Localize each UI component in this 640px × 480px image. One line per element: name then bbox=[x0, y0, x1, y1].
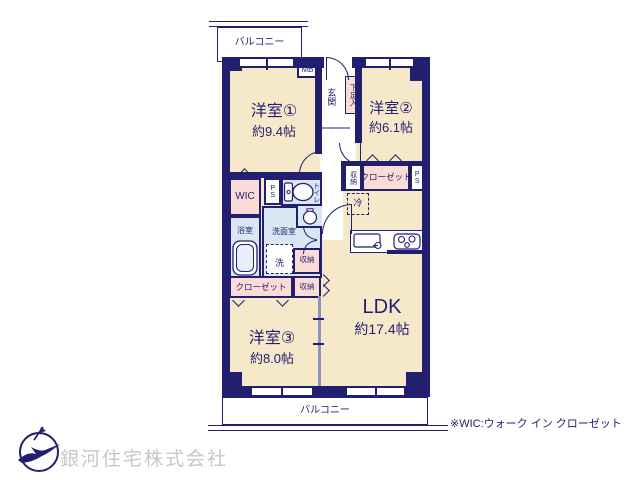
bathtub-icon bbox=[232, 240, 258, 276]
kitchen-sink-icon bbox=[353, 233, 385, 251]
vanity-sink-icon bbox=[300, 208, 320, 226]
corner-top-left bbox=[222, 57, 242, 71]
room3-size: 約8.0帖 bbox=[227, 351, 317, 366]
window-room2-top bbox=[366, 58, 413, 67]
room1-name: 洋室① bbox=[230, 103, 318, 121]
closet-left-label: クローゼット bbox=[229, 281, 293, 293]
stove-icon bbox=[393, 233, 421, 251]
wic-label: WIC bbox=[229, 190, 261, 204]
corner-bottom-right bbox=[406, 372, 430, 397]
washroom-label: 洗面室 bbox=[263, 227, 305, 238]
ps-left-label: PS bbox=[267, 181, 278, 202]
storage-right-label: 収納 bbox=[348, 166, 358, 189]
wall-storage-right-side bbox=[341, 161, 346, 191]
bottom-balcony-outer-rail bbox=[208, 425, 448, 431]
ldk-size: 約17.4帖 bbox=[330, 321, 434, 337]
storage-mid-upper-label: 収納 bbox=[293, 254, 321, 266]
toilet-label: トイレ bbox=[311, 179, 321, 205]
room1-size: 約9.4帖 bbox=[230, 124, 318, 139]
bath-label: 浴室 bbox=[229, 226, 261, 237]
company-logo-bird-icon bbox=[12, 422, 66, 476]
partition-room3-ldk bbox=[318, 296, 321, 386]
wic-note: ※WIC:ウォーク イン クローゼット bbox=[450, 415, 640, 429]
washer-label: 洗 bbox=[266, 257, 293, 270]
corner-bottom-left bbox=[222, 372, 242, 397]
bottom-balcony-label: バルコニー bbox=[222, 404, 428, 418]
ps-right-label: PS bbox=[412, 167, 422, 188]
genkan-label: 玄関 bbox=[324, 82, 337, 112]
entrance-step-line bbox=[322, 127, 350, 129]
room2-size: 約6.1帖 bbox=[358, 121, 424, 135]
floor-plan-page: バルコニー 玄関 トイレ 浴室 洗面室 洗 収納 収納 クローゼット WIC P… bbox=[0, 0, 640, 480]
storage-mid-lower-label: 収納 bbox=[293, 281, 321, 293]
window-room1-top bbox=[240, 58, 293, 67]
window-room3-bottom bbox=[252, 387, 312, 396]
room3-name: 洋室③ bbox=[227, 330, 317, 348]
top-balcony-label: バルコニー bbox=[219, 36, 300, 50]
closet-right-label: クローゼット bbox=[362, 171, 410, 183]
company-name: 銀河住宅株式会社 bbox=[60, 444, 280, 468]
ldk-name: LDK bbox=[330, 296, 434, 318]
partition-tick-1 bbox=[313, 318, 324, 320]
room2-name: 洋室② bbox=[358, 100, 424, 117]
kitchen-counter-edge bbox=[387, 250, 424, 254]
window-ldk-bottom bbox=[347, 387, 404, 396]
corner-top-right bbox=[410, 57, 430, 81]
